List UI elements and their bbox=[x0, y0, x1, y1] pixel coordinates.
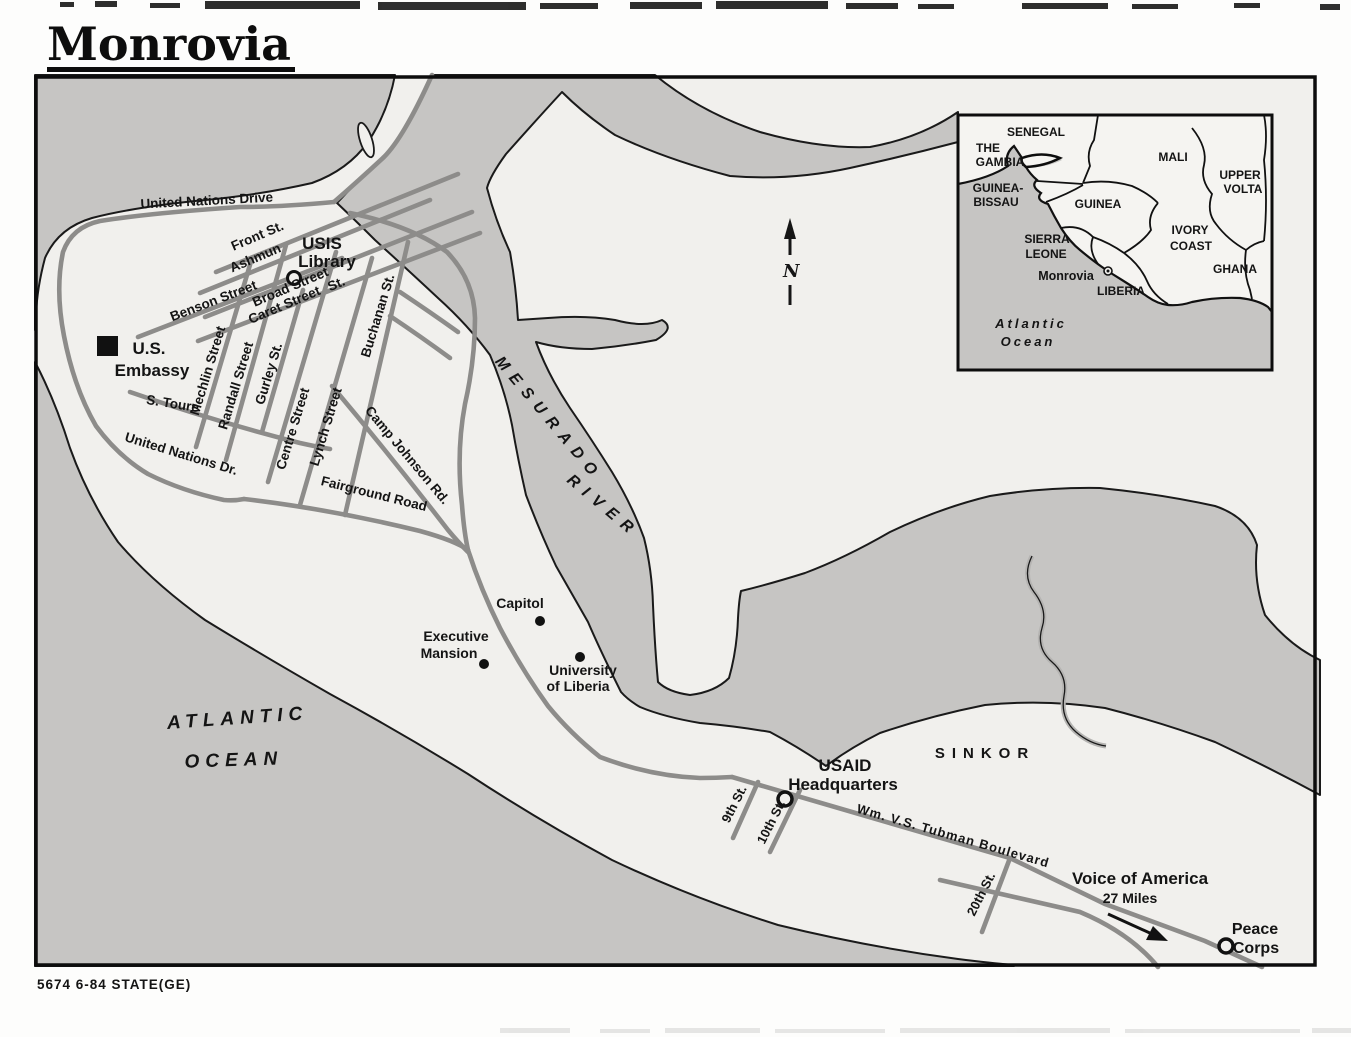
inset-label-sierra-leone-1: SIERRA bbox=[1024, 232, 1070, 246]
monrovia-map-svg: Monrovia bbox=[0, 0, 1351, 1037]
page-title: Monrovia bbox=[47, 17, 291, 71]
inset-monrovia-dot bbox=[1107, 270, 1110, 273]
executive-mansion-marker bbox=[479, 659, 489, 669]
inset-label-guinea: GUINEA bbox=[1075, 197, 1122, 211]
inset-label-upper-volta-1: UPPER bbox=[1219, 168, 1261, 182]
label-usaid-1: USAID bbox=[819, 756, 872, 775]
scan-artifact-top bbox=[60, 1, 1340, 10]
inset-label-guinea-bissau-1: GUINEA- bbox=[973, 181, 1024, 195]
label-university-1: University bbox=[549, 662, 617, 678]
label-usis-1: USIS bbox=[302, 234, 342, 253]
label-ocean: OCEAN bbox=[184, 748, 283, 772]
inset-label-senegal: SENEGAL bbox=[1007, 125, 1065, 139]
inset-label-ocean: Ocean bbox=[1001, 334, 1056, 349]
inset-map: SENEGAL THE GAMBIA GUINEA- BISSAU GUINEA… bbox=[958, 115, 1272, 370]
title-underline bbox=[47, 67, 295, 72]
us-embassy-marker bbox=[97, 336, 118, 356]
scan-artifact-bottom bbox=[500, 1028, 1351, 1033]
university-marker bbox=[575, 652, 585, 662]
label-usaid-2: Headquarters bbox=[788, 775, 898, 794]
label-embassy-2: Embassy bbox=[115, 361, 190, 380]
label-university-2: of Liberia bbox=[546, 678, 609, 694]
label-capitol: Capitol bbox=[496, 595, 543, 611]
capitol-marker bbox=[535, 616, 545, 626]
label-peace-1: Peace bbox=[1232, 921, 1278, 938]
inset-label-ghana: GHANA bbox=[1213, 262, 1257, 276]
label-voa-2: 27 Miles bbox=[1103, 890, 1158, 906]
label-embassy-1: U.S. bbox=[132, 339, 165, 358]
label-voa-1: Voice of America bbox=[1072, 869, 1209, 888]
label-executive-1: Executive bbox=[423, 628, 489, 644]
inset-label-ivory-1: IVORY bbox=[1172, 223, 1209, 237]
inset-label-upper-volta-2: VOLTA bbox=[1224, 182, 1263, 196]
label-executive-2: Mansion bbox=[421, 645, 478, 661]
inset-label-liberia: LIBERIA bbox=[1097, 284, 1145, 298]
credit-line: 5674 6-84 STATE(GE) bbox=[37, 977, 191, 992]
inset-label-gambia-1: THE bbox=[976, 141, 1000, 155]
inset-label-guinea-bissau-2: BISSAU bbox=[973, 195, 1018, 209]
peace-corps-marker bbox=[1219, 939, 1233, 953]
inset-label-atlantic: Atlantic bbox=[994, 316, 1067, 331]
inset-label-monrovia: Monrovia bbox=[1038, 269, 1095, 283]
label-sinkor: SINKOR bbox=[935, 745, 1035, 762]
inset-label-ivory-2: COAST bbox=[1170, 239, 1213, 253]
label-peace-2: Corps bbox=[1233, 940, 1279, 957]
label-usis-2: Library bbox=[298, 252, 356, 271]
north-label: N bbox=[782, 261, 801, 282]
scanned-map-page: Monrovia bbox=[0, 0, 1351, 1037]
inset-label-gambia-2: GAMBIA bbox=[976, 155, 1025, 169]
inset-label-sierra-leone-2: LEONE bbox=[1025, 247, 1066, 261]
inset-label-mali: MALI bbox=[1158, 150, 1187, 164]
